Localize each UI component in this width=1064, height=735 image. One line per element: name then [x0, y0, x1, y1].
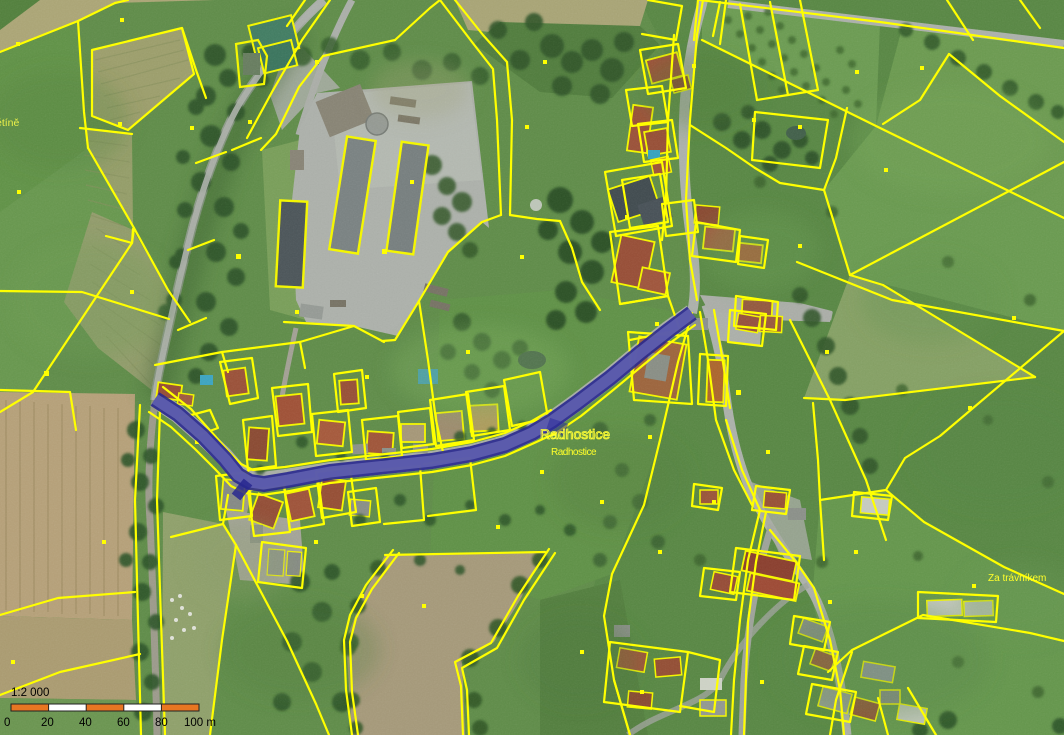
svg-text:Radhostice: Radhostice: [551, 447, 597, 458]
svg-text:60: 60: [117, 717, 130, 729]
svg-text:1:2 000: 1:2 000: [11, 687, 49, 699]
svg-text:0: 0: [4, 717, 10, 729]
svg-text:ětíně: ětíně: [0, 117, 20, 129]
svg-text:Za trávníkem: Za trávníkem: [988, 573, 1046, 584]
svg-text:40: 40: [79, 717, 92, 729]
svg-text:80: 80: [155, 717, 168, 729]
svg-text:Radhostice: Radhostice: [540, 426, 610, 442]
svg-text:20: 20: [41, 717, 54, 729]
svg-text:100 m: 100 m: [184, 717, 216, 729]
